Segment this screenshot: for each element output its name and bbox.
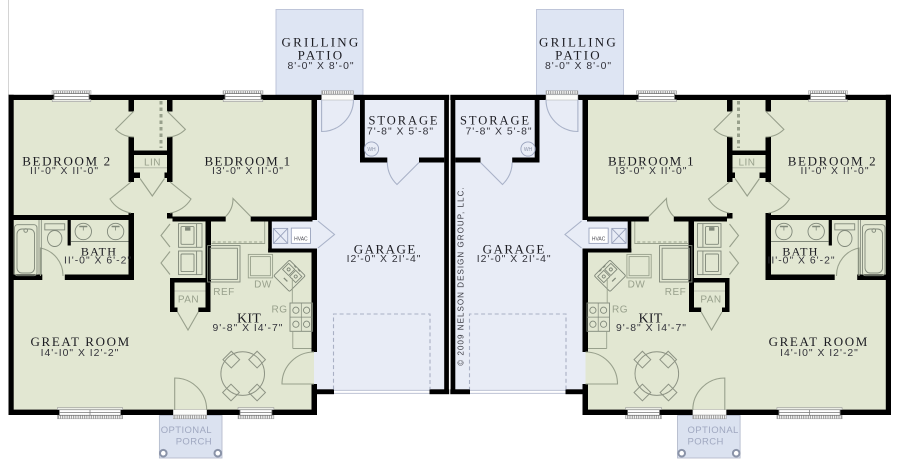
svg-text:DW: DW [254,280,272,291]
svg-text:I3'-0" X II'-0": I3'-0" X II'-0" [212,166,284,177]
svg-text:PAN: PAN [178,295,199,306]
svg-text:OPTIONAL: OPTIONAL [688,425,739,436]
svg-text:GREAT ROOM: GREAT ROOM [769,334,869,349]
svg-text:I4'-I0" X I2'-2": I4'-I0" X I2'-2" [780,348,859,359]
svg-text:8'-0" X 8'-0": 8'-0" X 8'-0" [545,61,612,72]
svg-text:LIN: LIN [144,158,161,169]
svg-text:9'-8" X I4'-7": 9'-8" X I4'-7" [213,323,284,334]
svg-text:WH: WH [367,147,376,153]
svg-text:7'-8" X 5'-8": 7'-8" X 5'-8" [367,127,434,138]
svg-text:RG: RG [612,305,628,316]
svg-text:DW: DW [628,280,646,291]
svg-text:REF: REF [213,287,235,298]
svg-text:STORAGE: STORAGE [460,114,531,128]
svg-text:9'-8" X I4'-7": 9'-8" X I4'-7" [616,323,687,334]
svg-text:OPTIONAL: OPTIONAL [161,425,212,436]
svg-text:WH: WH [524,147,533,153]
svg-text:II'-0" X 6'-2": II'-0" X 6'-2" [64,256,132,267]
svg-text:REF: REF [665,287,687,298]
svg-text:PORCH: PORCH [176,437,212,448]
svg-text:RG: RG [272,305,288,316]
svg-text:II'-0" X II'-0": II'-0" X II'-0" [30,166,99,177]
svg-text:LIN: LIN [738,158,755,169]
svg-text:STORAGE: STORAGE [368,114,439,128]
svg-text:I2'-0" X 2I'-4": I2'-0" X 2I'-4" [347,254,422,265]
svg-text:I3'-0" X II'-0": I3'-0" X II'-0" [616,166,688,177]
svg-text:II'-0" X 6'-2": II'-0" X 6'-2" [767,256,835,267]
svg-text:HVAC: HVAC [294,236,308,242]
svg-text:I4'-I0" X I2'-2": I4'-I0" X I2'-2" [41,348,120,359]
svg-text:8'-0" X 8'-0": 8'-0" X 8'-0" [287,61,354,72]
svg-text:GREAT ROOM: GREAT ROOM [30,334,130,349]
svg-text:I2'-0" X 2I'-4": I2'-0" X 2I'-4" [477,254,552,265]
svg-text:7'-8" X 5'-8": 7'-8" X 5'-8" [465,127,532,138]
svg-text:HVAC: HVAC [592,236,606,242]
svg-text:II'-0" X II'-0": II'-0" X II'-0" [800,166,869,177]
svg-text:PORCH: PORCH [688,437,724,448]
svg-text:© 2009 NELSON DESIGN GROUP, LL: © 2009 NELSON DESIGN GROUP, LLC. [457,186,466,365]
svg-text:PAN: PAN [700,295,721,306]
